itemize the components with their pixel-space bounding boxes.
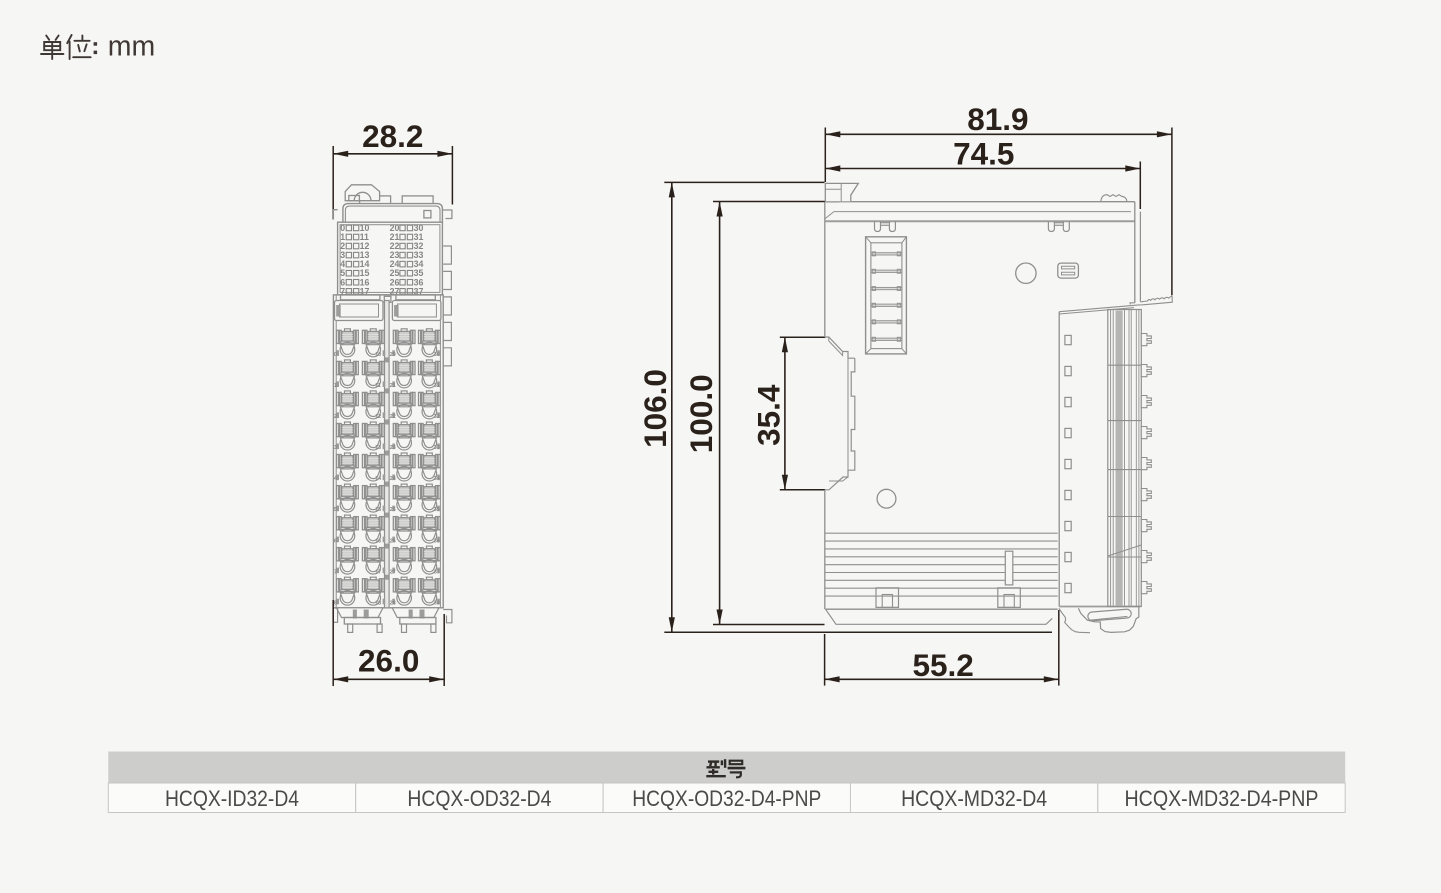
svg-text:7: 7: [334, 569, 337, 575]
svg-text:74.5: 74.5: [953, 135, 1014, 171]
svg-text:26.0: 26.0: [358, 643, 419, 679]
svg-text:mm: mm: [108, 31, 155, 63]
svg-text:14: 14: [375, 476, 381, 482]
svg-text:24: 24: [390, 476, 396, 482]
svg-text:28: 28: [390, 600, 396, 606]
svg-text:18: 18: [375, 600, 381, 606]
svg-text:HCQX-OD32-D4-PNP: HCQX-OD32-D4-PNP: [632, 786, 821, 811]
svg-text:27: 27: [390, 569, 396, 575]
svg-text:2: 2: [334, 414, 337, 420]
svg-text:12: 12: [375, 414, 381, 420]
svg-text:HCQX-MD32-D4-PNP: HCQX-MD32-D4-PNP: [1125, 786, 1319, 811]
svg-text:10: 10: [375, 352, 381, 358]
svg-text:HCQX-ID32-D4: HCQX-ID32-D4: [165, 786, 299, 811]
svg-text:36: 36: [434, 538, 440, 544]
svg-text:HCQX-OD32-D4: HCQX-OD32-D4: [407, 786, 551, 811]
svg-text:HCQX-MD32-D4: HCQX-MD32-D4: [901, 786, 1047, 811]
svg-text:0: 0: [334, 352, 337, 358]
svg-text:11: 11: [375, 383, 381, 389]
svg-text:16: 16: [375, 538, 381, 544]
svg-text:23: 23: [390, 445, 396, 451]
svg-text:6: 6: [334, 538, 337, 544]
svg-text:33: 33: [434, 445, 440, 451]
svg-text:26: 26: [390, 538, 396, 544]
svg-text:35: 35: [434, 507, 440, 513]
svg-text:3: 3: [334, 445, 337, 451]
svg-text:55.2: 55.2: [912, 647, 973, 683]
svg-text:100.0: 100.0: [683, 374, 719, 453]
svg-text:81.9: 81.9: [967, 101, 1028, 137]
svg-text:35.4: 35.4: [751, 384, 787, 446]
svg-text:34: 34: [434, 476, 440, 482]
svg-text:4: 4: [334, 476, 337, 482]
svg-text:21: 21: [390, 383, 396, 389]
svg-text:1: 1: [334, 383, 337, 389]
svg-text:25: 25: [390, 507, 396, 513]
svg-text:13: 13: [375, 445, 381, 451]
svg-text:38: 38: [434, 600, 440, 606]
svg-text:5: 5: [334, 507, 337, 513]
svg-text:8: 8: [334, 600, 337, 606]
svg-text:106.0: 106.0: [637, 369, 673, 448]
svg-text:17: 17: [375, 569, 381, 575]
svg-text:31: 31: [434, 383, 440, 389]
svg-text:15: 15: [375, 507, 381, 513]
svg-text:37: 37: [434, 569, 440, 575]
svg-text:32: 32: [434, 414, 440, 420]
svg-text:30: 30: [434, 352, 440, 358]
svg-text:22: 22: [390, 414, 396, 420]
svg-text:20: 20: [390, 352, 396, 358]
svg-text:28.2: 28.2: [362, 118, 423, 154]
